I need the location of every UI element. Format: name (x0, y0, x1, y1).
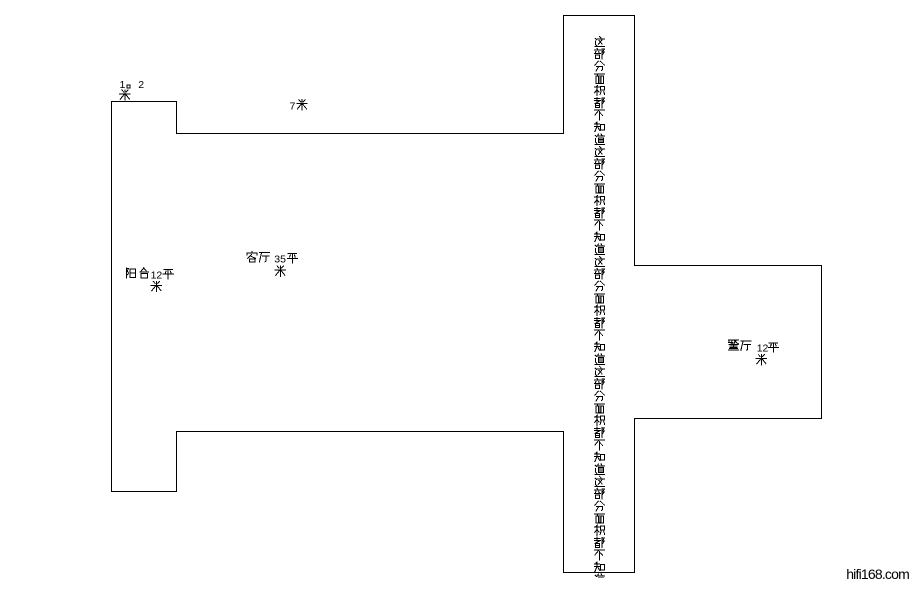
svg-text:12: 12 (757, 342, 769, 354)
svg-text:2: 2 (138, 79, 144, 91)
svg-text:1: 1 (120, 79, 126, 91)
svg-text:7: 7 (290, 101, 296, 113)
svg-text:12: 12 (151, 269, 163, 281)
svg-text:35: 35 (274, 254, 286, 266)
svg-text:hifi168.com: hifi168.com (846, 566, 909, 582)
